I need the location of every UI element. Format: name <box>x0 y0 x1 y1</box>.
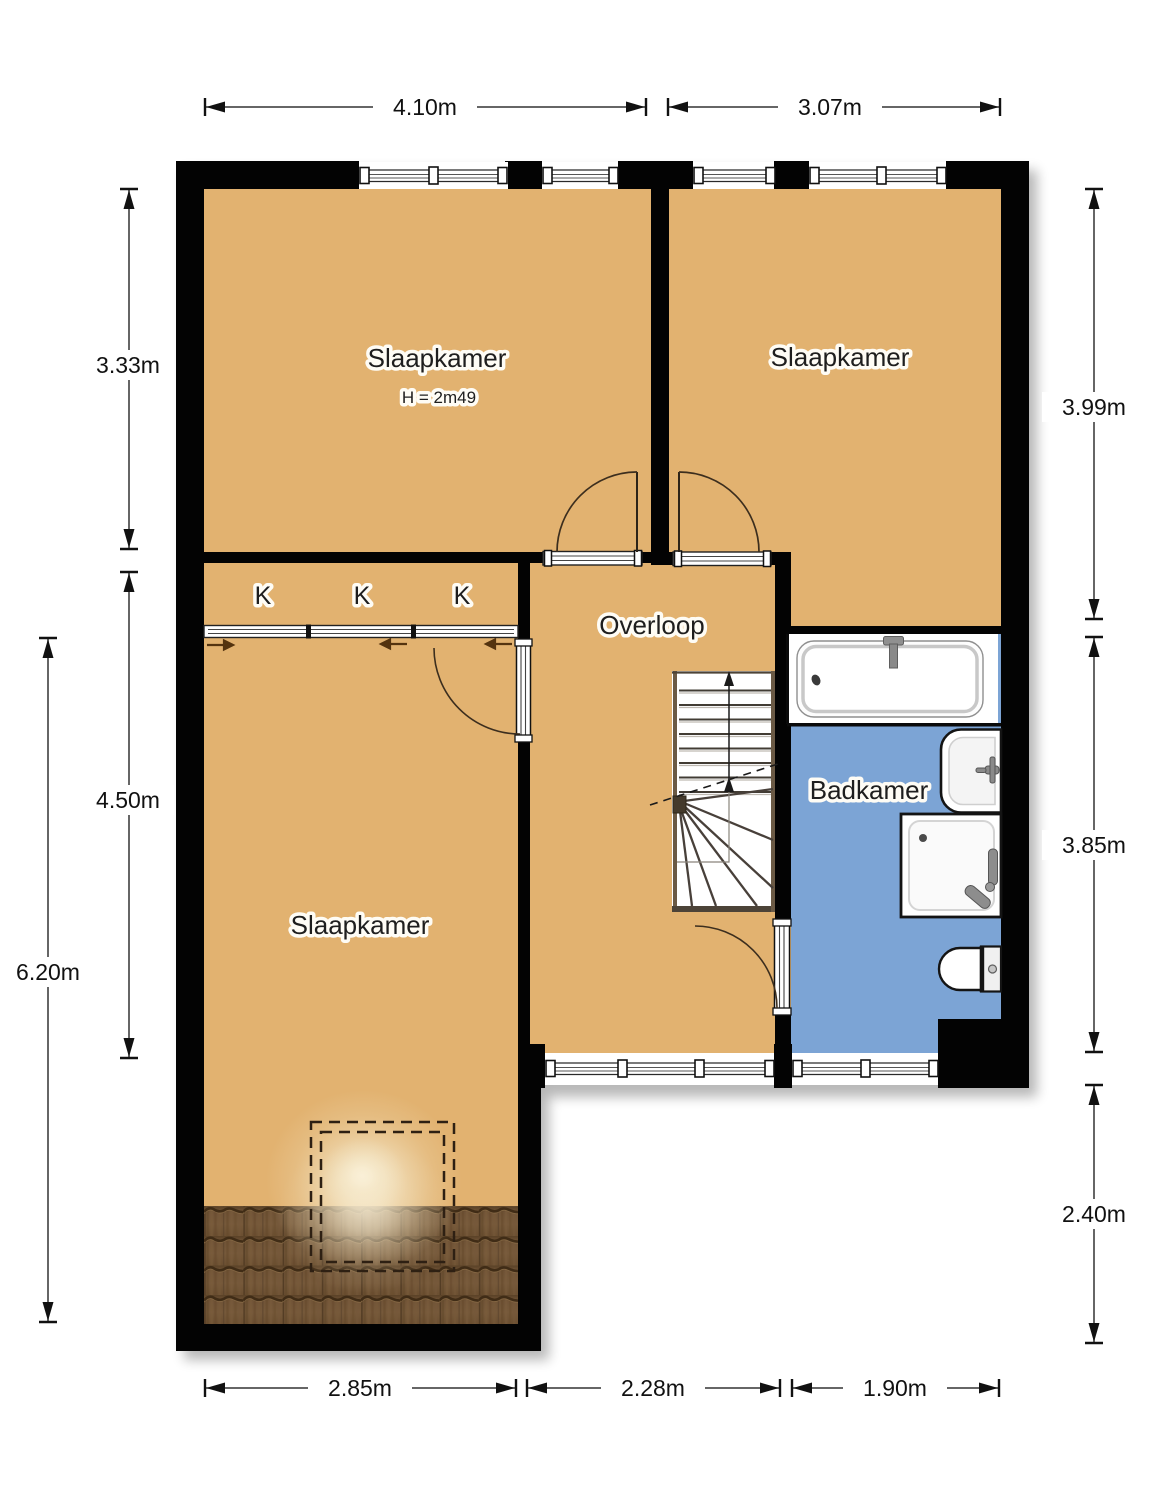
svg-text:Badkamer: Badkamer <box>810 775 929 805</box>
svg-text:2.28m: 2.28m <box>621 1375 685 1401</box>
svg-text:Overloop: Overloop <box>599 610 705 640</box>
svg-text:1.90m: 1.90m <box>863 1375 927 1401</box>
svg-text:3.99m: 3.99m <box>1062 394 1126 420</box>
svg-text:K: K <box>454 582 471 610</box>
svg-text:3.07m: 3.07m <box>798 94 862 120</box>
svg-text:H = 2m49: H = 2m49 <box>402 388 476 407</box>
svg-text:2.85m: 2.85m <box>328 1375 392 1401</box>
svg-text:Slaapkamer: Slaapkamer <box>291 910 430 940</box>
svg-text:K: K <box>354 582 371 610</box>
svg-text:K: K <box>255 582 272 610</box>
svg-text:Slaapkamer: Slaapkamer <box>771 342 910 372</box>
svg-text:4.10m: 4.10m <box>393 94 457 120</box>
svg-text:6.20m: 6.20m <box>16 959 80 985</box>
svg-text:3.85m: 3.85m <box>1062 832 1126 858</box>
svg-text:3.33m: 3.33m <box>96 352 160 378</box>
svg-text:Slaapkamer: Slaapkamer <box>368 343 507 373</box>
svg-text:4.50m: 4.50m <box>96 787 160 813</box>
svg-text:2.40m: 2.40m <box>1062 1201 1126 1227</box>
